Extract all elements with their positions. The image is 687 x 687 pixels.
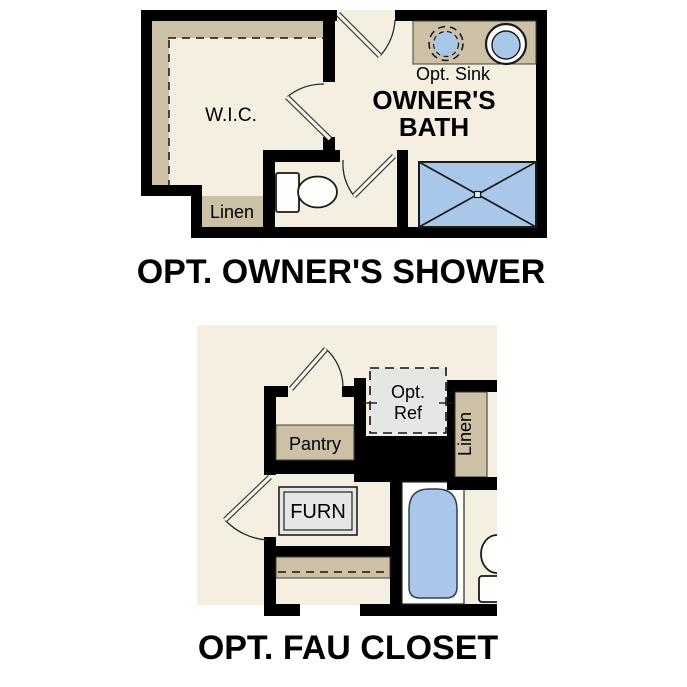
pantry-label: Pantry xyxy=(289,434,341,454)
floorplan-page: W.I.C. Linen Opt. Sink OWNER'S BATH OPT.… xyxy=(0,0,687,687)
linen-closet-label: Linen xyxy=(455,412,475,456)
walls xyxy=(447,477,497,490)
plan-top-title: OPT. OWNER'S SHOWER xyxy=(137,253,546,291)
plan-fau-closet: Pantry FURN Opt. Ref Linen xyxy=(197,325,513,616)
opt-ref-label-line1: Opt. xyxy=(391,382,425,402)
opt-ref-label-line2: Ref xyxy=(394,403,423,423)
owners-bath-label-line2: BATH xyxy=(399,112,469,142)
floorplan-drawing: W.I.C. Linen Opt. Sink OWNER'S BATH OPT.… xyxy=(0,0,687,687)
bathtub-fixture xyxy=(402,482,464,604)
owners-bath-label-line1: OWNER'S xyxy=(372,85,495,115)
plan-owners-shower: W.I.C. Linen Opt. Sink OWNER'S BATH xyxy=(141,10,547,238)
wic-room-label: W.I.C. xyxy=(205,105,257,126)
linen-closet-label: Linen xyxy=(210,202,254,222)
furnace-label: FURN xyxy=(290,501,346,523)
closet-shelf xyxy=(276,557,390,578)
plan-bottom-title: OPT. FAU CLOSET xyxy=(198,629,499,667)
shower-fixture xyxy=(419,162,536,227)
opt-sink-label: Opt. Sink xyxy=(416,64,491,84)
sink-fixture xyxy=(486,24,526,64)
